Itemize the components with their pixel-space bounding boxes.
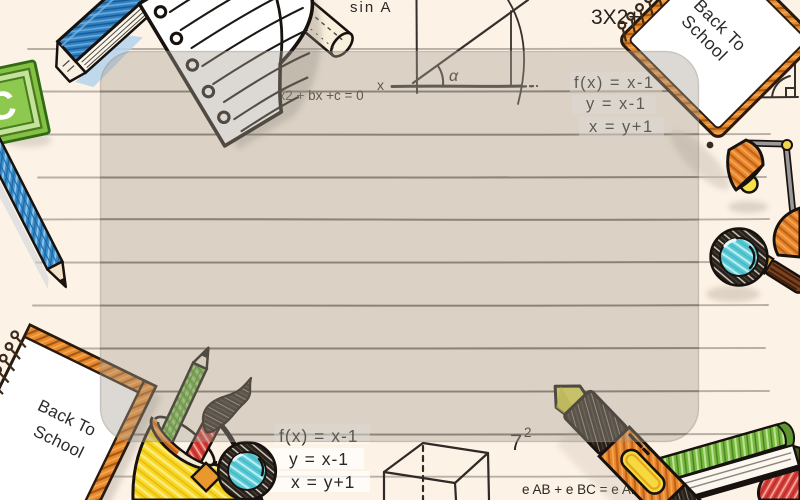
svg-text:x = y+1: x = y+1 xyxy=(291,472,355,492)
svg-text:y = x-1: y = x-1 xyxy=(289,449,349,469)
svg-text:sin A: sin A xyxy=(350,0,393,16)
